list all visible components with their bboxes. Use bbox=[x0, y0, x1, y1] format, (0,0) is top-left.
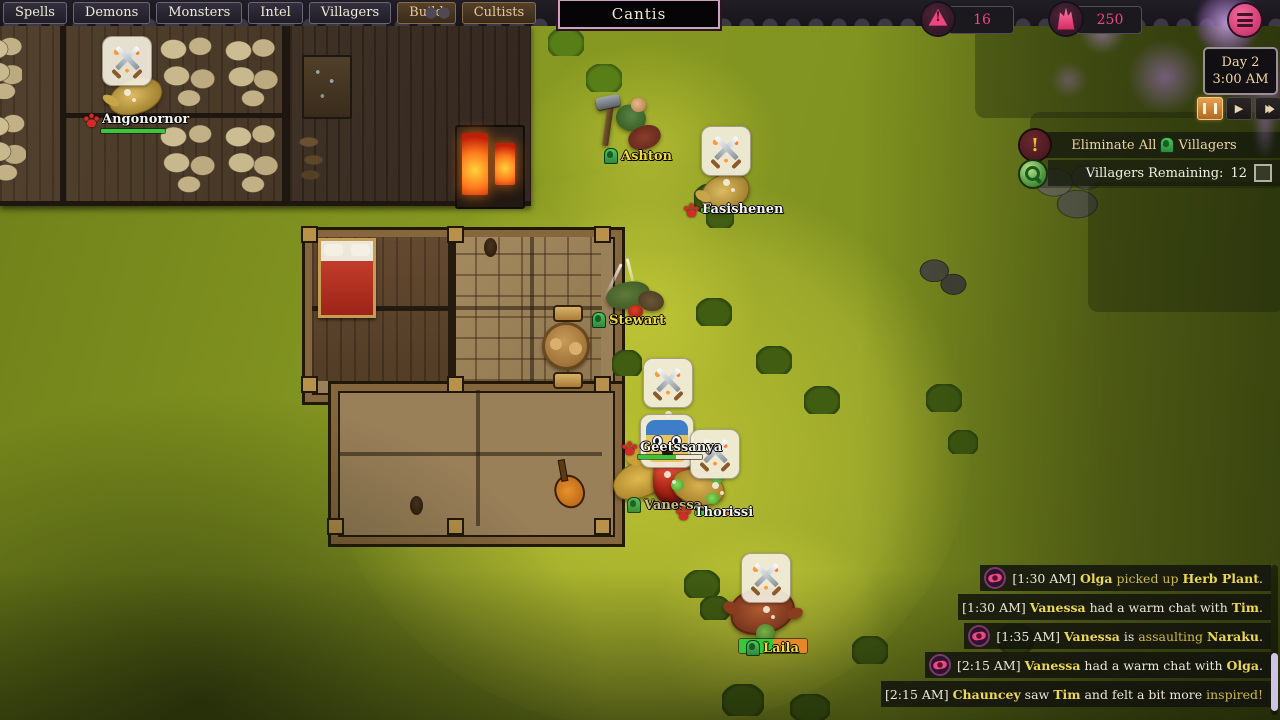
fast-forward-icon: ▶▶ bbox=[1265, 103, 1271, 114]
log-segment: is bbox=[1120, 629, 1138, 644]
log-segment: inspired! bbox=[1206, 687, 1263, 702]
vil-icon bbox=[746, 640, 760, 656]
swords-thought-bubble bbox=[643, 358, 693, 408]
character-name: Thorissi bbox=[694, 505, 753, 520]
villager-icon bbox=[1160, 137, 1174, 153]
paw-icon bbox=[622, 441, 637, 455]
character-name: Laila bbox=[763, 641, 799, 656]
swords-thought-bubble bbox=[701, 126, 751, 176]
log-entry: [2:15 AM] Vanessa had a warm chat with O… bbox=[925, 652, 1271, 678]
stewart-label: Stewart bbox=[592, 312, 665, 328]
play-icon: ▶ bbox=[1235, 103, 1243, 114]
log-entry-text: [2:15 AM] Vanessa had a warm chat with O… bbox=[957, 658, 1263, 673]
swords-thought-bubble bbox=[102, 36, 152, 86]
hamburger-menu-icon[interactable] bbox=[1229, 4, 1261, 36]
log-segment: Olga bbox=[1227, 658, 1259, 673]
log-segment: [2:15 AM] bbox=[885, 687, 953, 702]
vil-icon bbox=[627, 497, 641, 513]
health-segment bbox=[676, 455, 702, 459]
playback-controls: ▶▶▶▶▶▶ bbox=[1197, 97, 1280, 120]
geetssanya-label: Geetssanya bbox=[622, 440, 722, 455]
log-segment: [1:30 AM] bbox=[1012, 571, 1080, 586]
log-segment: picked up bbox=[1113, 571, 1183, 586]
vil-icon bbox=[592, 312, 606, 328]
log-segment: Vanessa bbox=[1064, 629, 1120, 644]
log-entry-text: [1:30 AM] Vanessa had a warm chat with T… bbox=[962, 600, 1263, 615]
ashton-label: Ashton bbox=[604, 148, 672, 164]
fast-forward-button[interactable]: ▶▶ bbox=[1255, 97, 1280, 120]
pause-button[interactable] bbox=[1197, 97, 1223, 120]
day-label: Day 2 bbox=[1222, 54, 1260, 71]
character-name: Geetssanya bbox=[640, 440, 722, 455]
log-segment: [1:30 AM] bbox=[962, 600, 1030, 615]
eye-icon bbox=[929, 654, 951, 676]
character-name: Stewart bbox=[609, 313, 665, 328]
resource-value: 250 bbox=[1076, 6, 1142, 34]
log-entry-text: [2:15 AM] Chauncey saw Tim and felt a bi… bbox=[885, 687, 1263, 702]
character-name: Fasishenen bbox=[702, 202, 783, 217]
log-scrollbar-thumb[interactable] bbox=[1271, 653, 1278, 711]
progress-label: Villagers Remaining: bbox=[1086, 166, 1224, 181]
tab-spells[interactable]: Spells bbox=[3, 2, 67, 24]
objective-title-suffix: Villagers bbox=[1178, 138, 1236, 153]
objective-exclamation-icon: ! bbox=[1020, 130, 1050, 160]
resource-value: 16 bbox=[948, 6, 1014, 34]
resource-souls-crystal: 250 bbox=[1050, 0, 1142, 36]
location-title: Cantis bbox=[560, 1, 718, 27]
log-segment: assaulting bbox=[1138, 629, 1207, 644]
play-button[interactable]: ▶ bbox=[1226, 97, 1252, 120]
thorissi-label: Thorissi bbox=[676, 505, 753, 520]
paw-icon bbox=[684, 203, 699, 217]
log-segment: Herb Plant bbox=[1182, 571, 1259, 586]
log-segment: had a warm chat with bbox=[1080, 658, 1226, 673]
swords-thought-bubble bbox=[741, 553, 791, 603]
objective-checkbox[interactable] bbox=[1254, 164, 1272, 182]
eye-icon bbox=[984, 567, 1006, 589]
log-entry-text: [1:35 AM] Vanessa is assaulting Naraku. bbox=[996, 629, 1263, 644]
character-name: Angonornor bbox=[102, 112, 189, 127]
log-scrollbar[interactable] bbox=[1271, 565, 1278, 715]
tab-demons[interactable]: Demons bbox=[73, 2, 150, 24]
log-segment: [2:15 AM] bbox=[957, 658, 1025, 673]
fasishenen-label: Fasishenen bbox=[684, 202, 783, 217]
log-segment: saw bbox=[1021, 687, 1054, 702]
log-entry-text: [1:30 AM] Olga picked up Herb Plant. bbox=[1012, 571, 1263, 586]
log-segment: . bbox=[1259, 629, 1263, 644]
ashton-creature[interactable] bbox=[596, 96, 668, 154]
objective-title: Eliminate All Villagers bbox=[1028, 132, 1280, 158]
menu-tabs: SpellsDemonsMonstersIntelVillagersBuildC… bbox=[3, 2, 536, 24]
pause-icon bbox=[1203, 103, 1217, 114]
wall-pillars bbox=[424, 5, 450, 21]
tab-intel[interactable]: Intel bbox=[248, 2, 303, 24]
event-log: [1:30 AM] Olga picked up Herb Plant.[1:3… bbox=[881, 565, 1271, 707]
log-segment: [1:35 AM] bbox=[996, 629, 1064, 644]
vil-icon bbox=[604, 148, 618, 164]
angonornor-health-bar bbox=[100, 128, 166, 134]
souls-crystal-icon bbox=[1050, 3, 1082, 35]
tab-villagers[interactable]: Villagers bbox=[309, 2, 391, 24]
log-segment: Olga bbox=[1080, 571, 1112, 586]
log-entry: [1:30 AM] Olga picked up Herb Plant. bbox=[980, 565, 1271, 591]
resource-warning: 16 bbox=[922, 0, 1014, 36]
magnifier-icon[interactable] bbox=[1020, 161, 1046, 187]
laila-label: Laila bbox=[746, 640, 799, 656]
clock-panel: Day 2 3:00 AM bbox=[1203, 47, 1278, 95]
log-segment: Vanessa bbox=[1025, 658, 1081, 673]
log-segment: . bbox=[1259, 658, 1263, 673]
objective-title-prefix: Eliminate All bbox=[1071, 138, 1156, 153]
angonornor-label: Angonornor bbox=[84, 112, 189, 127]
log-entry: [1:35 AM] Vanessa is assaulting Naraku. bbox=[964, 623, 1271, 649]
health-segment bbox=[101, 129, 165, 133]
log-segment: and felt a bit more bbox=[1081, 687, 1207, 702]
tab-monsters[interactable]: Monsters bbox=[156, 2, 242, 24]
character-name: Ashton bbox=[621, 149, 672, 164]
eye-icon bbox=[968, 625, 990, 647]
paw-icon bbox=[84, 113, 99, 127]
log-entry: [1:30 AM] Vanessa had a warm chat with T… bbox=[958, 594, 1271, 620]
log-segment: Chauncey bbox=[953, 687, 1021, 702]
paw-icon bbox=[676, 506, 691, 520]
log-segment: Tim bbox=[1232, 600, 1259, 615]
progress-value: 12 bbox=[1230, 166, 1247, 181]
log-entry: [2:15 AM] Chauncey saw Tim and felt a bi… bbox=[881, 681, 1271, 707]
log-segment: had a warm chat with bbox=[1086, 600, 1232, 615]
objective-progress: Villagers Remaining: 12 bbox=[1048, 160, 1280, 186]
log-segment: Tim bbox=[1053, 687, 1080, 702]
resource-bar: 16250 bbox=[922, 0, 1142, 36]
log-segment: Vanessa bbox=[1030, 600, 1086, 615]
warning-icon bbox=[922, 3, 954, 35]
time-label: 3:00 AM bbox=[1212, 71, 1268, 88]
health-segment bbox=[638, 455, 676, 459]
log-segment: . bbox=[1259, 571, 1263, 586]
tab-cultists[interactable]: Cultists bbox=[462, 2, 536, 24]
log-segment: . bbox=[1259, 600, 1263, 615]
log-segment: Naraku bbox=[1207, 629, 1259, 644]
